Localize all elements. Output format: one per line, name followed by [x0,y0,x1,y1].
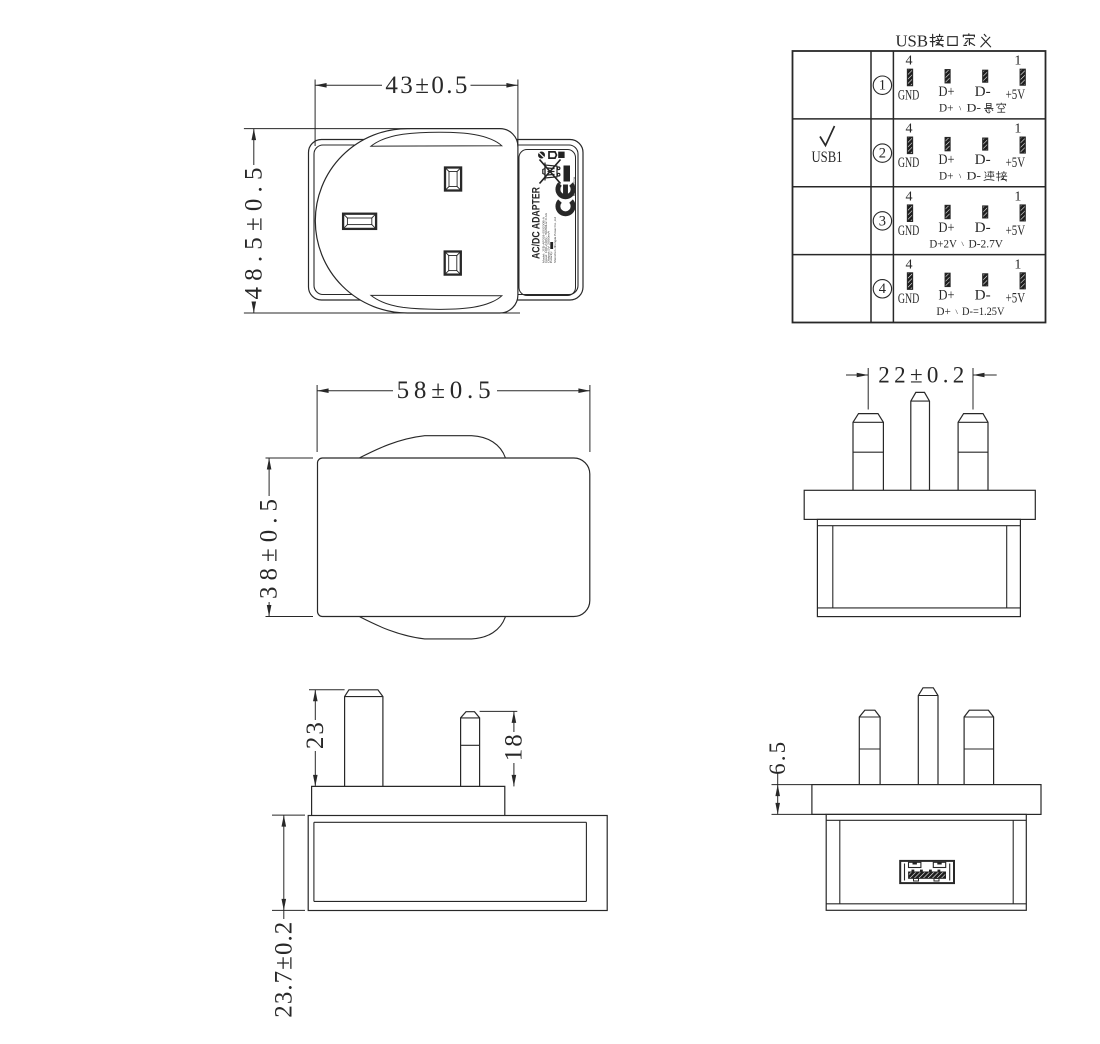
svg-text:GND: GND [898,291,920,307]
svg-text:+5V: +5V [1006,155,1026,171]
svg-text:GND: GND [898,155,920,171]
svg-text:38±0.5: 38±0.5 [256,499,283,599]
svg-text:AC/DC ADAPTER: AC/DC ADAPTER [531,187,543,259]
svg-text:48.5±0.5: 48.5±0.5 [240,168,267,300]
svg-text:1: 1 [1014,257,1021,272]
svg-text:USB1: USB1 [812,149,843,166]
svg-text:1: 1 [1014,54,1021,69]
svg-text:58±0.5: 58±0.5 [397,377,491,404]
svg-text:Polarity:: Polarity: [549,251,553,263]
svg-text:D-: D- [967,103,982,115]
svg-text:4: 4 [906,257,913,272]
svg-text:D+: D+ [939,288,955,304]
svg-text:GND: GND [898,223,920,239]
svg-text:4: 4 [906,189,913,204]
svg-text:6.5: 6.5 [765,742,790,775]
svg-text:1: 1 [879,78,886,94]
svg-text:D-: D- [967,170,982,182]
svg-text:4: 4 [906,122,913,137]
svg-text:+5V: +5V [1006,291,1026,307]
svg-text:23: 23 [302,722,329,749]
svg-text:1: 1 [1014,122,1021,137]
svg-text:23.7±0.2: 23.7±0.2 [270,922,297,1018]
svg-text:D-2.7V: D-2.7V [969,238,1004,250]
svg-text:D-: D- [975,152,991,168]
svg-text:4: 4 [906,54,913,69]
svg-text:3: 3 [879,213,886,229]
svg-text:D+: D+ [936,306,951,318]
svg-text:D+: D+ [939,220,955,236]
svg-text:1: 1 [1014,189,1021,204]
svg-text:+5V: +5V [1006,223,1026,239]
svg-text:D+: D+ [939,152,955,168]
svg-text:2: 2 [879,145,886,161]
svg-text:D+: D+ [939,84,955,100]
svg-text:43±0.5: 43±0.5 [385,72,467,99]
svg-text:D-=1.25V: D-=1.25V [962,306,1005,318]
svg-text:+5V: +5V [1006,87,1026,103]
svg-text:USB: USB [896,32,929,51]
svg-text:4: 4 [879,281,887,297]
svg-text:D-: D- [975,288,991,304]
svg-text:D+: D+ [939,170,954,182]
svg-text:D+: D+ [939,103,954,115]
svg-text:Shenzhen Jihongda Power Co.,Lt: Shenzhen Jihongda Power Co.,Ltd [553,216,557,263]
svg-text:Made in China: Made in China [572,177,576,197]
svg-text:18: 18 [500,734,527,761]
svg-text:D-: D- [975,220,991,236]
svg-text:D+2V: D+2V [929,238,957,250]
svg-text:22±0.2: 22±0.2 [878,363,964,388]
svg-text:D-: D- [975,84,991,100]
svg-text:GND: GND [898,87,920,103]
